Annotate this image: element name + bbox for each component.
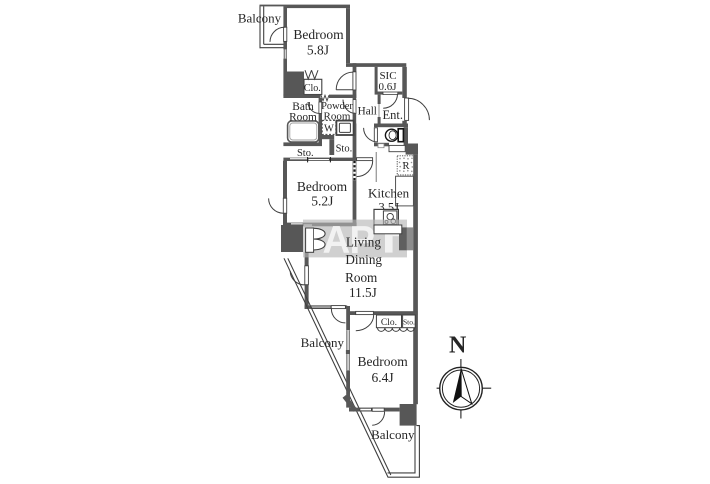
svg-text:Sto.: Sto.	[297, 148, 314, 159]
svg-text:5.8J: 5.8J	[307, 43, 329, 58]
svg-text:Balcony: Balcony	[371, 427, 415, 442]
svg-text:Clo.: Clo.	[381, 318, 397, 328]
svg-text:Balcony: Balcony	[301, 335, 345, 350]
svg-text:Ent.: Ent.	[383, 108, 403, 122]
svg-text:Hall: Hall	[358, 106, 377, 118]
svg-text:W: W	[324, 123, 334, 134]
svg-text:Bedroom: Bedroom	[293, 27, 344, 42]
svg-text:Living: Living	[346, 234, 382, 249]
svg-text:Sto.: Sto.	[403, 317, 415, 326]
svg-text:0.6J: 0.6J	[378, 81, 397, 93]
svg-text:N: N	[449, 333, 467, 359]
svg-text:Room: Room	[345, 270, 378, 285]
svg-text:Clo.: Clo.	[304, 83, 321, 94]
svg-text:Bedroom: Bedroom	[357, 354, 408, 369]
svg-text:Bedroom: Bedroom	[297, 179, 348, 194]
svg-text:Balcony: Balcony	[238, 10, 282, 25]
svg-text:Kitchen: Kitchen	[368, 186, 410, 201]
svg-text:R: R	[402, 161, 409, 172]
svg-text:Dining: Dining	[345, 252, 382, 267]
svg-text:5.2J: 5.2J	[311, 194, 333, 209]
svg-text:Sto.: Sto.	[336, 144, 353, 155]
svg-text:11.5J: 11.5J	[349, 285, 377, 300]
svg-text:6.4J: 6.4J	[372, 370, 394, 385]
svg-text:SIC: SIC	[379, 70, 396, 82]
